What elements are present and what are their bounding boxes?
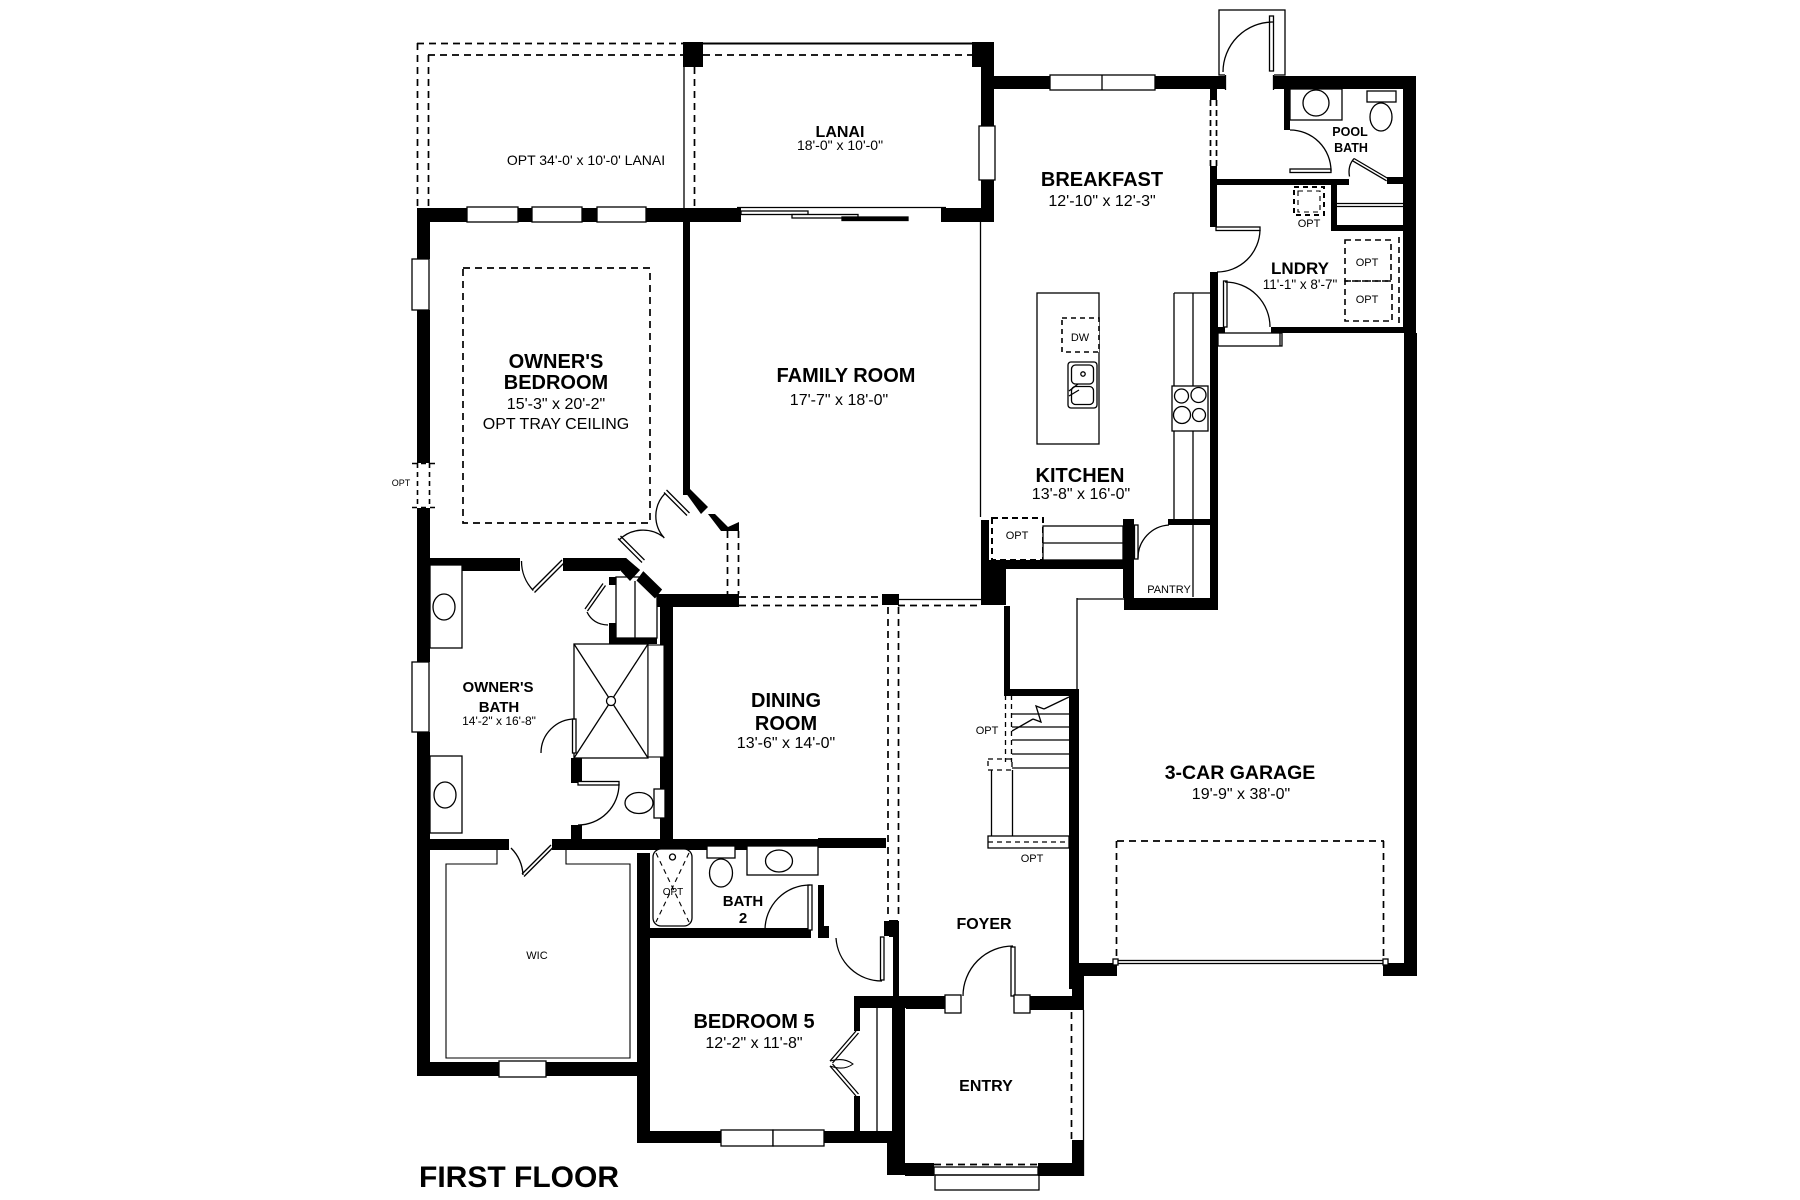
svg-text:PANTRY: PANTRY [1147, 584, 1191, 596]
svg-text:13'-6" x 14'-0": 13'-6" x 14'-0" [737, 735, 835, 752]
svg-text:14'-2" x 16'-8": 14'-2" x 16'-8" [462, 714, 536, 728]
svg-text:OPT: OPT [1006, 530, 1029, 542]
svg-text:17'-7" x 18'-0": 17'-7" x 18'-0" [790, 392, 888, 409]
svg-text:11'-1" x 8'-7": 11'-1" x 8'-7" [1263, 277, 1338, 292]
svg-text:BEDROOM: BEDROOM [504, 372, 608, 394]
svg-text:OWNER'S: OWNER'S [509, 351, 604, 373]
svg-text:15'-3" x 20'-2": 15'-3" x 20'-2" [507, 396, 605, 413]
svg-text:ENTRY: ENTRY [959, 1078, 1013, 1095]
svg-text:BATH: BATH [723, 893, 764, 910]
svg-text:BREAKFAST: BREAKFAST [1041, 169, 1163, 191]
svg-text:BEDROOM 5: BEDROOM 5 [693, 1011, 814, 1033]
svg-text:OPT: OPT [1356, 294, 1379, 306]
svg-text:3-CAR GARAGE: 3-CAR GARAGE [1165, 762, 1316, 784]
svg-text:FOYER: FOYER [956, 916, 1012, 933]
svg-text:OPT: OPT [1021, 853, 1044, 865]
svg-text:OPT: OPT [1356, 257, 1379, 269]
svg-text:ROOM: ROOM [755, 713, 817, 735]
svg-text:OPT TRAY CEILING: OPT TRAY CEILING [483, 416, 629, 433]
svg-text:12'-2" x 11'-8": 12'-2" x 11'-8" [705, 1035, 802, 1052]
svg-text:LNDRY: LNDRY [1271, 259, 1330, 278]
svg-text:18'-0" x 10'-0": 18'-0" x 10'-0" [797, 137, 883, 153]
svg-text:BATH: BATH [1334, 141, 1368, 155]
svg-text:OPT: OPT [392, 478, 411, 488]
svg-text:12'-10" x 12'-3": 12'-10" x 12'-3" [1048, 193, 1155, 210]
svg-text:OPT: OPT [976, 725, 999, 737]
svg-text:FIRST FLOOR: FIRST FLOOR [419, 1161, 619, 1194]
svg-text:2: 2 [739, 910, 747, 927]
svg-text:13'-8" x 16'-0": 13'-8" x 16'-0" [1032, 486, 1130, 503]
svg-text:DW: DW [1071, 332, 1090, 344]
svg-text:OPT 34'-0' x 10'-0' LANAI: OPT 34'-0' x 10'-0' LANAI [507, 152, 665, 168]
svg-text:OPT: OPT [1298, 218, 1321, 230]
svg-text:KITCHEN: KITCHEN [1036, 465, 1125, 487]
svg-text:OPT: OPT [663, 887, 684, 898]
svg-text:DINING: DINING [751, 690, 821, 712]
svg-text:WIC: WIC [526, 950, 547, 962]
svg-text:19'-9" x 38'-0": 19'-9" x 38'-0" [1192, 786, 1290, 803]
svg-text:OWNER'S: OWNER'S [462, 679, 533, 696]
svg-text:POOL: POOL [1332, 125, 1368, 139]
svg-text:FAMILY ROOM: FAMILY ROOM [777, 365, 916, 387]
